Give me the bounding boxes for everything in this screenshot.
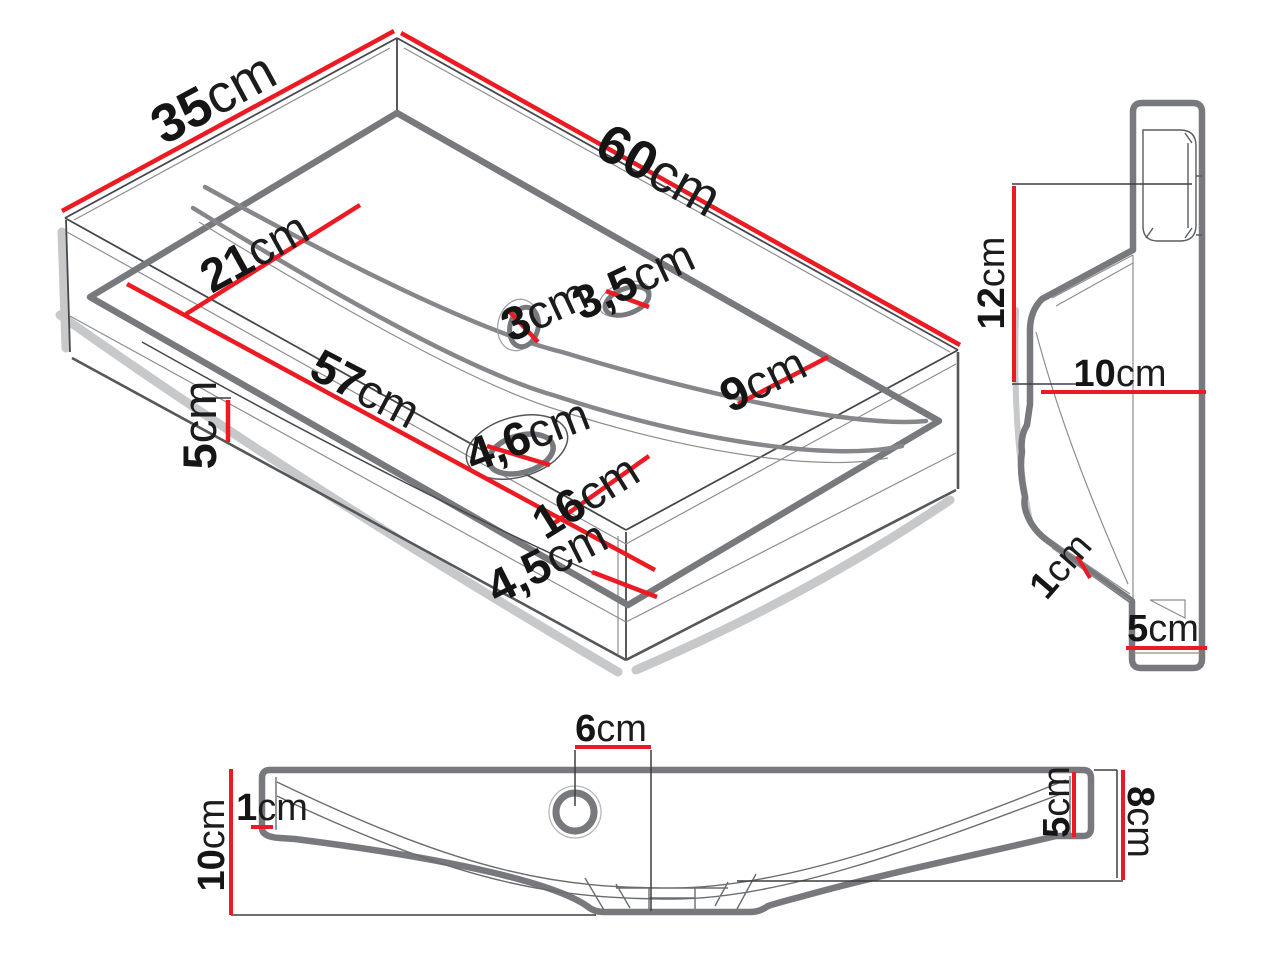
dim-label-basin-width: 57cm [302,338,428,438]
dim-label-side-foot: 5cm [1127,608,1199,650]
dim-ext-front [231,750,1123,915]
dim-label-faucet-hole: 3,5cm [564,228,702,330]
front-interior-lines [276,776,1070,910]
isometric-view: 35cm 60cm 21cm 3cm 3,5cm 9cm 57cm 5cm 4,… [60,31,960,672]
dim-label-front-rim: 1cm [236,787,308,829]
dim-label-side-depth: 10cm [1074,353,1167,395]
dim-label-side-back-height: 12cm [971,237,1013,330]
dim-label-side-rim: 1cm [1022,525,1101,607]
dim-label-front-height: 10cm [191,799,233,892]
front-outline [262,770,1091,912]
iso-deck-rim [90,113,939,605]
dim-label-left-height: 5cm [173,381,226,470]
technical-drawing-canvas: 35cm 60cm 21cm 3cm 3,5cm 9cm 57cm 5cm 4,… [0,0,1280,960]
dim-label-front-back-height: 8cm [1119,786,1161,858]
side-wall-recess [1143,130,1202,241]
washbasin-dimension-drawing: 35cm 60cm 21cm 3cm 3,5cm 9cm 57cm 5cm 4,… [0,0,1280,960]
front-view: 6cm 1cm 10cm 5cm 8cm [191,708,1161,915]
dim-label-width: 60cm [586,112,731,229]
dim-label-front-right-rim: 5cm [1036,766,1078,838]
dim-label-front-faucet-offset: 6cm [575,708,647,750]
dim-label-depth: 35cm [141,40,286,156]
side-view: 12cm 10cm 1cm 5cm [971,103,1207,668]
